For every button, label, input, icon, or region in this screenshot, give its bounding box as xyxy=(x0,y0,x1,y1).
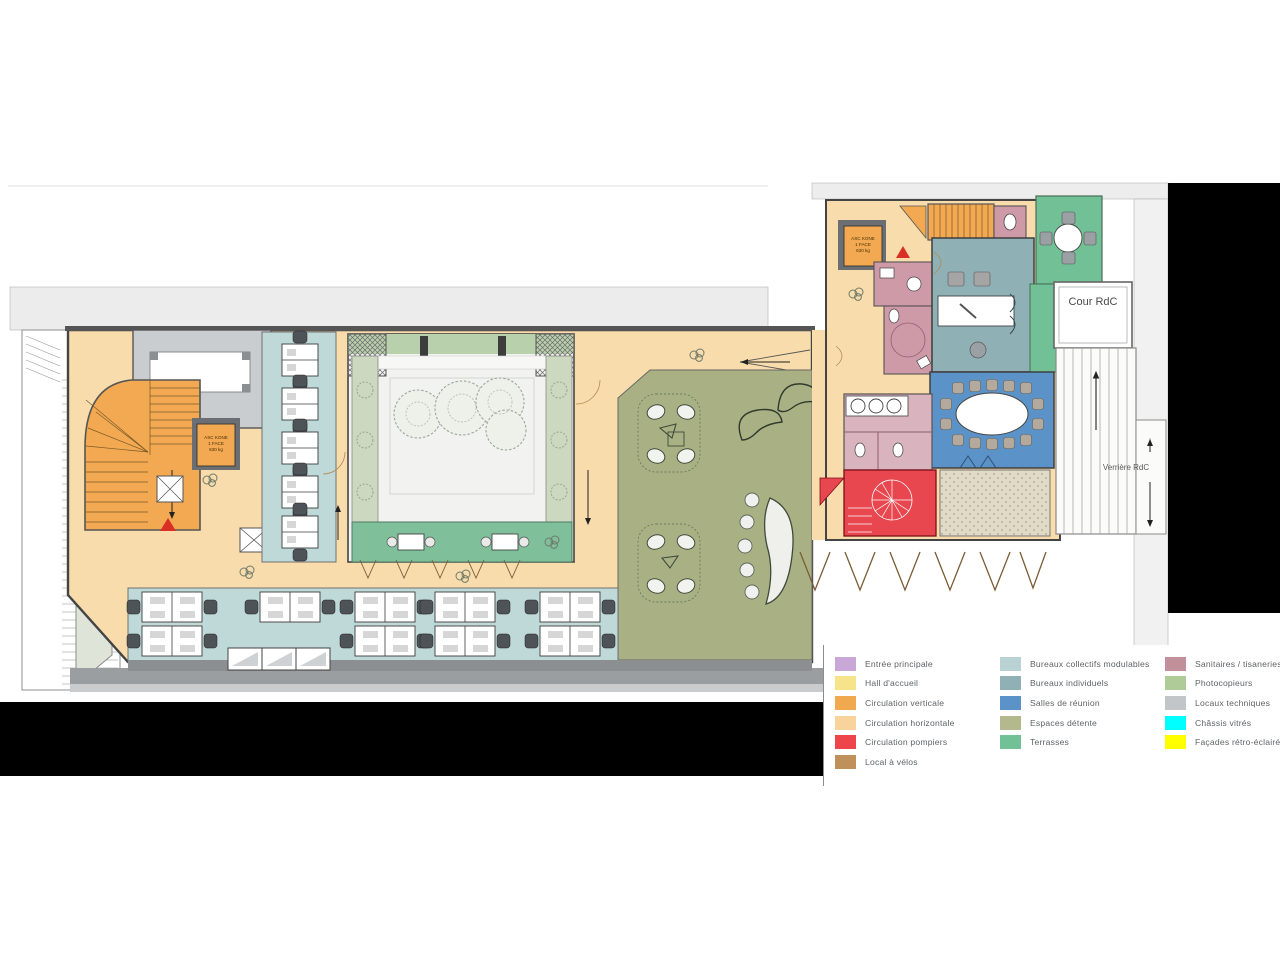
legend-label: Hall d'accueil xyxy=(865,678,918,688)
floor-plan-page: ASC KONE 1 FACE 630 kg xyxy=(0,0,1280,960)
legend-item: Locaux techniques xyxy=(1165,693,1280,713)
open-office-zone xyxy=(127,588,618,662)
legend-swatch xyxy=(1165,657,1186,671)
legend-swatch xyxy=(1165,696,1186,710)
main-building: ASC KONE 1 FACE 630 kg xyxy=(65,326,817,671)
legend-swatch xyxy=(1000,735,1021,749)
elevator-label-line1: ASC KONE xyxy=(204,435,228,440)
legend-item: Local à vélos xyxy=(835,752,955,772)
large-plants-row xyxy=(800,552,1046,590)
legend-swatch xyxy=(835,755,856,769)
legend-swatch xyxy=(1000,696,1021,710)
tisanerie-sanitaires xyxy=(844,394,932,470)
right-wing: ASC KONE 1 FACE 630 kg xyxy=(812,196,1166,540)
legend-label: Circulation pompiers xyxy=(865,737,947,747)
legend-label: Photocopieurs xyxy=(1195,678,1253,688)
cour-rdc-label: Cour RdC xyxy=(1069,296,1118,308)
wc-top xyxy=(994,206,1026,242)
legend-item: Châssis vitrés xyxy=(1165,713,1280,733)
espaces-detente-zone xyxy=(618,349,817,660)
planter-east xyxy=(546,356,572,524)
legend-swatch xyxy=(835,696,856,710)
legend-swatch xyxy=(835,735,856,749)
legend-swatch xyxy=(835,657,856,671)
legend-swatch xyxy=(1165,735,1186,749)
legend-column-3: Sanitaires / tisaneries Photocopieurs Lo… xyxy=(1165,654,1280,752)
legend-label: Sanitaires / tisaneries xyxy=(1195,659,1280,669)
legend-label: Local à vélos xyxy=(865,757,918,767)
legend-item: Circulation pompiers xyxy=(835,732,955,752)
legend-item: Photocopieurs xyxy=(1165,674,1280,694)
legend-label: Circulation verticale xyxy=(865,698,944,708)
elevator-label-line3: 630 kg xyxy=(856,248,870,253)
main-staircase xyxy=(85,380,200,530)
legend-item: Bureaux individuels xyxy=(1000,674,1150,694)
verriere-label: Verrière RdC xyxy=(1103,463,1149,472)
legend-swatch xyxy=(1000,676,1021,690)
legend-label: Salles de réunion xyxy=(1030,698,1100,708)
wc-accessible xyxy=(884,306,932,374)
legend-label: Façades rétro-éclairées xyxy=(1195,737,1280,747)
legend-item: Terrasses xyxy=(1000,732,1150,752)
floor-plan-drawing: ASC KONE 1 FACE 630 kg xyxy=(0,0,1280,960)
legend-label: Espaces détente xyxy=(1030,718,1097,728)
legend-swatch xyxy=(835,676,856,690)
legend-column-1: Entrée principale Hall d'accueil Circula… xyxy=(835,654,955,772)
legend-item: Circulation horizontale xyxy=(835,713,955,733)
office-strip xyxy=(262,331,336,562)
individual-office xyxy=(932,238,1034,372)
legend-label: Bureaux collectifs modulables xyxy=(1030,659,1150,669)
legend-swatch xyxy=(1000,657,1021,671)
legend-item: Hall d'accueil xyxy=(835,674,955,694)
elevator-label-line3: 630 kg xyxy=(209,447,223,452)
legend-panel: Entrée principale Hall d'accueil Circula… xyxy=(823,645,1280,786)
courtyard xyxy=(348,334,574,562)
legend-label: Entrée principale xyxy=(865,659,933,669)
legend-item: Sanitaires / tisaneries xyxy=(1165,654,1280,674)
elevator-label-line2: 1 FACE xyxy=(855,242,871,247)
legend-item: Salles de réunion xyxy=(1000,693,1150,713)
legend-label: Circulation horizontale xyxy=(865,718,955,728)
facade-grilles xyxy=(228,648,330,670)
legend-swatch xyxy=(1165,716,1186,730)
legend-column-2: Bureaux collectifs modulables Bureaux in… xyxy=(1000,654,1150,752)
legend-label: Locaux techniques xyxy=(1195,698,1270,708)
legend-item: Espaces détente xyxy=(1000,713,1150,733)
duct-shaft xyxy=(157,476,183,502)
black-mask-bottom xyxy=(0,702,823,776)
elevator-main: ASC KONE 1 FACE 630 kg xyxy=(192,418,240,470)
legend-swatch xyxy=(1165,676,1186,690)
legend-label: Terrasses xyxy=(1030,737,1069,747)
cour-rdc: Cour RdC xyxy=(1054,282,1132,348)
legend-item: Entrée principale xyxy=(835,654,955,674)
legend-swatch xyxy=(1000,716,1021,730)
legend-item: Circulation verticale xyxy=(835,693,955,713)
legend-item: Bureaux collectifs modulables xyxy=(1000,654,1150,674)
black-mask-right xyxy=(1168,183,1280,613)
legend-item: Façades rétro-éclairées xyxy=(1165,732,1280,752)
legend-label: Châssis vitrés xyxy=(1195,718,1251,728)
elevator-label-line1: ASC KONE xyxy=(851,236,875,241)
elevator-label-line2: 1 FACE xyxy=(208,441,224,446)
meeting-room xyxy=(930,372,1054,468)
legend-label: Bureaux individuels xyxy=(1030,678,1108,688)
courtyard-terrace xyxy=(352,522,572,562)
planter-west xyxy=(352,356,378,524)
sanitaires-mid xyxy=(874,262,932,306)
legend-swatch xyxy=(835,716,856,730)
